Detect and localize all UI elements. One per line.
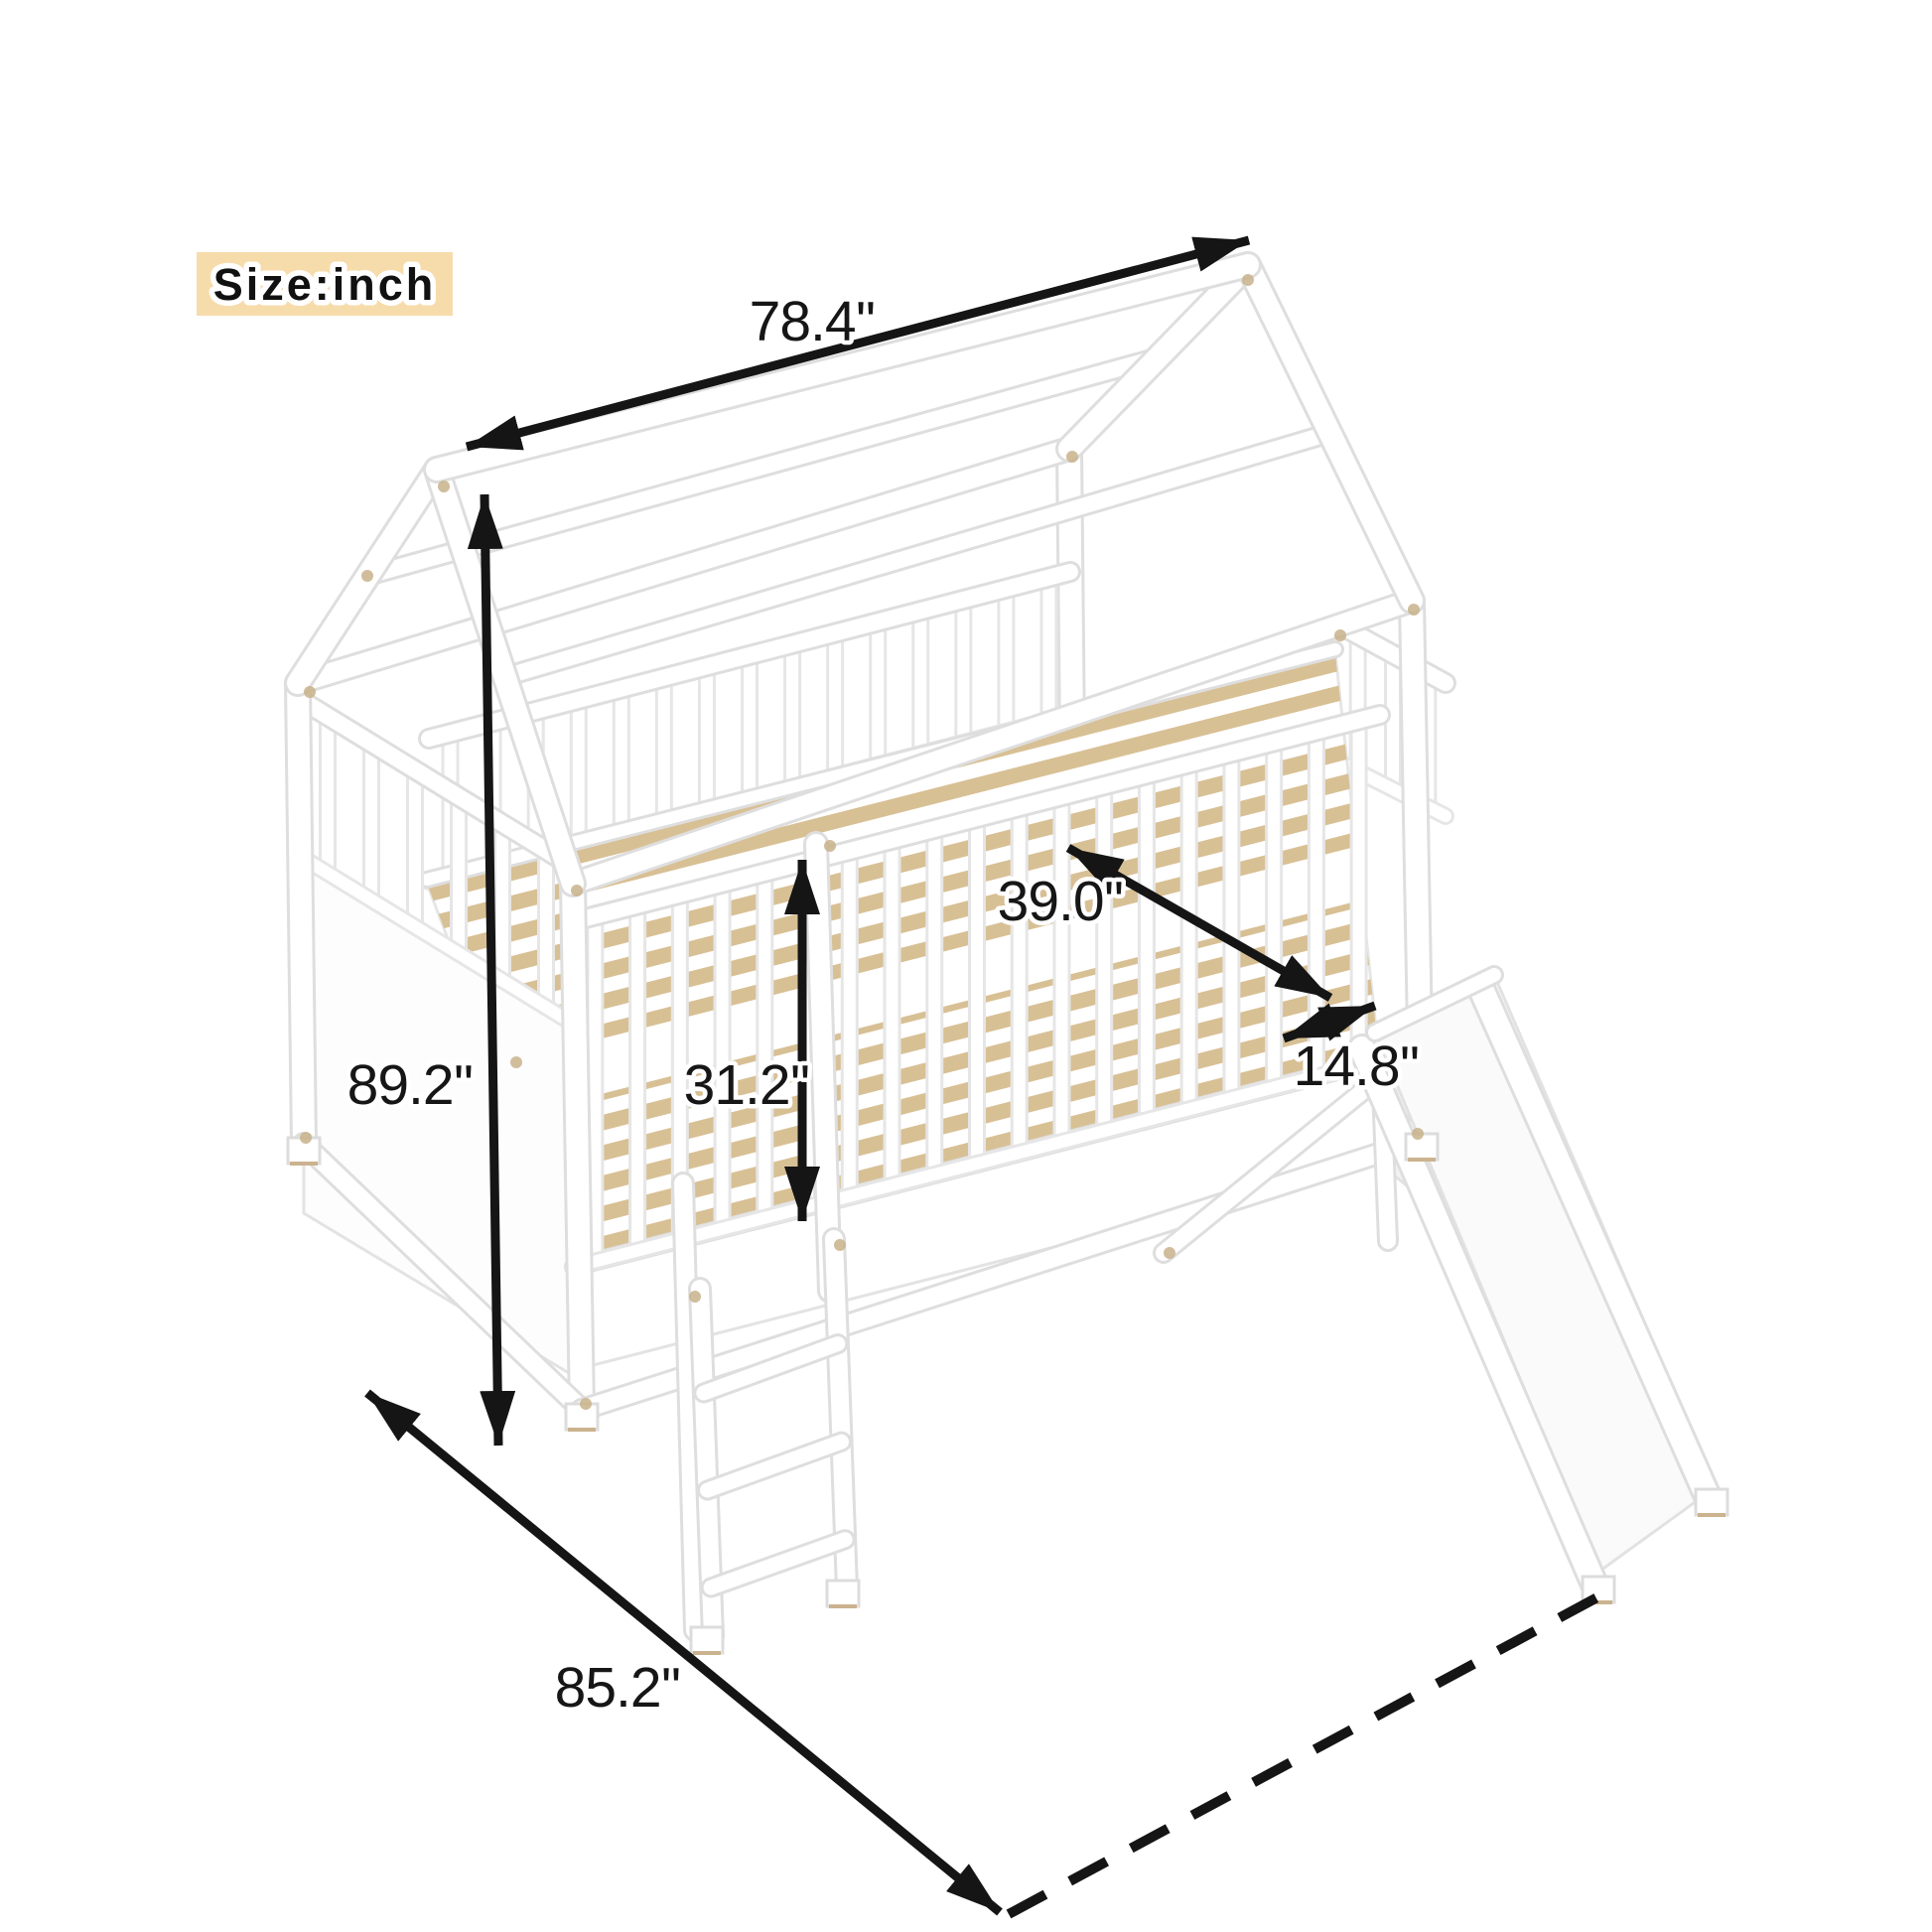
beam-core [573,884,582,1410]
beam-core [1248,265,1412,601]
foot [691,1627,723,1653]
screw-dot [1412,1128,1424,1140]
screw-dot [834,1239,846,1251]
dim-label-guardrail-height: 31.2'' [684,1053,810,1117]
foot [827,1581,859,1606]
unit-badge: Size:inch [197,252,453,316]
screw-dot [304,686,316,698]
screw-dot [438,481,450,492]
screw-dot [510,1056,522,1068]
bed-drawing [288,240,1727,1914]
floor-dash [1009,1591,1608,1914]
beam-core [298,683,304,1144]
dim-label-overall-height: 89.2'' [347,1053,474,1117]
dim-label-overall-depth: 85.2'' [555,1656,681,1720]
beam-core [816,844,830,1291]
unit-badge-label: Size:inch [213,259,437,310]
screw-dot [300,1132,312,1144]
foot [1696,1489,1727,1515]
screw-dot [1164,1247,1175,1259]
screw-dot [361,570,373,582]
screw-dot [580,1398,592,1410]
bed-dimension-diagram: Size:inch 78.4'' 89.2'' 39.0'' 31.2'' 14… [0,0,1932,1932]
screw-dot [571,885,583,897]
dim-label-slide-opening: 14.8'' [1294,1035,1420,1098]
beam-core [711,1540,845,1587]
screw-dot [1408,604,1420,616]
floor-dashed-line [1009,1591,1608,1914]
screw-dot [1242,274,1254,286]
dim-label-roof-length: 78.4'' [750,290,876,353]
screw-dot [1334,629,1346,641]
dim-label-bed-width: 39.0'' [998,870,1124,933]
screw-dot [1066,451,1078,463]
screw-dot [689,1291,701,1303]
screw-dot [824,840,836,852]
beam-core [708,1442,842,1490]
